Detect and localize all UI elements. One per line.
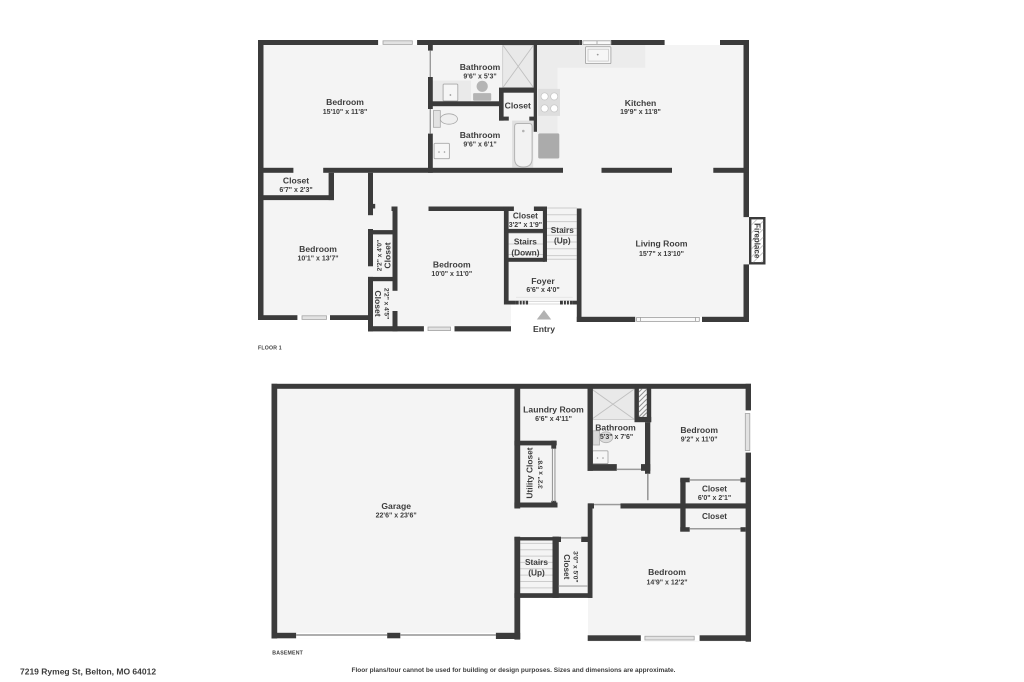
svg-text:Closet: Closet bbox=[702, 512, 727, 521]
svg-text:BASEMENT: BASEMENT bbox=[272, 650, 303, 656]
svg-text:2'2" x 4'0": 2'2" x 4'0" bbox=[376, 240, 383, 271]
svg-text:(Down): (Down) bbox=[511, 247, 539, 257]
svg-text:Stairs: Stairs bbox=[514, 236, 537, 246]
svg-text:14'9" x 12'2": 14'9" x 12'2" bbox=[646, 580, 687, 587]
svg-text:22'6" x 23'6": 22'6" x 23'6" bbox=[376, 513, 417, 520]
svg-text:6'6" x 4'11": 6'6" x 4'11" bbox=[535, 416, 572, 423]
svg-text:(Up): (Up) bbox=[528, 568, 545, 578]
svg-text:19'9" x 11'8": 19'9" x 11'8" bbox=[620, 109, 661, 116]
svg-text:Closet: Closet bbox=[702, 484, 727, 493]
svg-text:6'0" x 2'1": 6'0" x 2'1" bbox=[698, 495, 731, 502]
svg-text:Bedroom: Bedroom bbox=[433, 260, 471, 270]
svg-text:3'2" x 1'9": 3'2" x 1'9" bbox=[509, 222, 542, 229]
svg-text:9'2" x 11'0": 9'2" x 11'0" bbox=[681, 437, 718, 444]
svg-text:Kitchen: Kitchen bbox=[625, 98, 657, 108]
svg-text:15'10" x 11'8": 15'10" x 11'8" bbox=[323, 109, 368, 116]
svg-text:Bathroom: Bathroom bbox=[595, 423, 636, 433]
svg-text:Bedroom: Bedroom bbox=[326, 97, 364, 107]
svg-text:10'0" x 11'0": 10'0" x 11'0" bbox=[431, 271, 472, 278]
svg-text:Closet: Closet bbox=[562, 554, 571, 579]
svg-text:Bedroom: Bedroom bbox=[299, 244, 337, 254]
svg-text:Garage: Garage bbox=[381, 501, 411, 511]
svg-text:3'2" x 5'8": 3'2" x 5'8" bbox=[537, 457, 544, 488]
svg-text:Bathroom: Bathroom bbox=[460, 62, 501, 72]
svg-text:Closet: Closet bbox=[505, 101, 531, 111]
svg-text:2'2" x 4'5": 2'2" x 4'5" bbox=[383, 288, 390, 319]
svg-text:15'7" x 13'10": 15'7" x 13'10" bbox=[639, 251, 684, 258]
svg-text:Closet: Closet bbox=[513, 212, 538, 221]
svg-text:Closet: Closet bbox=[382, 242, 392, 268]
svg-text:Stairs: Stairs bbox=[551, 225, 574, 235]
svg-text:Fireplace: Fireplace bbox=[752, 223, 761, 259]
svg-text:Stairs: Stairs bbox=[525, 557, 548, 567]
svg-text:3'0" x 5'0": 3'0" x 5'0" bbox=[572, 551, 579, 582]
svg-text:Living Room: Living Room bbox=[635, 239, 687, 249]
svg-text:10'1" x 13'7": 10'1" x 13'7" bbox=[297, 255, 338, 262]
svg-text:Bedroom: Bedroom bbox=[680, 425, 718, 435]
svg-text:7219 Rymeg St, Belton, MO 6401: 7219 Rymeg St, Belton, MO 64012 bbox=[20, 667, 156, 677]
svg-text:9'6" x 5'3": 9'6" x 5'3" bbox=[463, 73, 496, 80]
svg-text:Entry: Entry bbox=[533, 324, 555, 334]
svg-text:9'6" x 6'1": 9'6" x 6'1" bbox=[463, 141, 496, 148]
svg-text:Bathroom: Bathroom bbox=[460, 130, 501, 140]
svg-text:(Up): (Up) bbox=[554, 236, 571, 246]
svg-text:Utility Closet: Utility Closet bbox=[525, 447, 535, 498]
svg-text:FLOOR 1: FLOOR 1 bbox=[258, 345, 282, 351]
svg-text:Foyer: Foyer bbox=[531, 276, 555, 286]
svg-text:5'3" x 7'6": 5'3" x 7'6" bbox=[600, 434, 633, 441]
svg-text:Closet: Closet bbox=[373, 290, 383, 316]
svg-text:Laundry Room: Laundry Room bbox=[523, 405, 584, 415]
svg-text:Closet: Closet bbox=[283, 176, 309, 186]
svg-text:6'7" x 2'3": 6'7" x 2'3" bbox=[279, 187, 312, 194]
svg-text:6'6" x 4'0": 6'6" x 4'0" bbox=[526, 287, 559, 294]
svg-text:Bedroom: Bedroom bbox=[648, 567, 686, 577]
svg-text:Floor plans/tour cannot be use: Floor plans/tour cannot be used for buil… bbox=[352, 667, 676, 674]
